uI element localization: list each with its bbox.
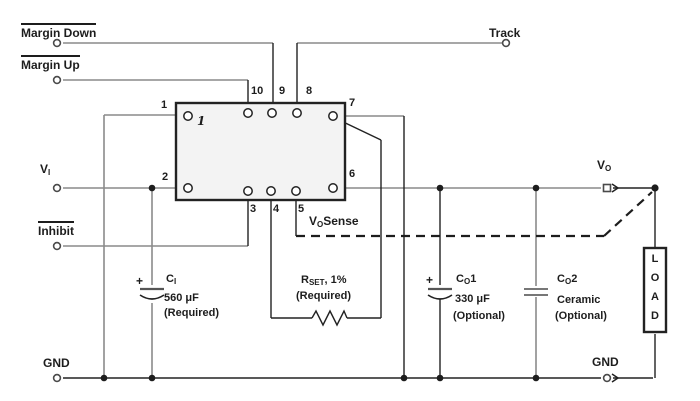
pin-label-4: 4: [273, 204, 279, 215]
co1-name: C: [456, 273, 464, 285]
ci-capacitor-symbol: [140, 289, 164, 299]
vo-label: VO: [597, 159, 611, 173]
vo-sense-base: V: [309, 214, 317, 228]
pin-label-2: 2: [162, 172, 168, 183]
ci-value-label: 560 μF: [164, 293, 199, 304]
wires-gray: [63, 43, 601, 378]
co2-capacitor-symbol: [524, 289, 548, 295]
track-label: Track: [489, 27, 520, 39]
vo-sub: O: [605, 164, 611, 173]
ci-sub: I: [174, 277, 176, 286]
inhibit-text: Inhibit: [38, 221, 74, 237]
pin-label-6: 6: [349, 169, 355, 180]
margin-down-label: Margin Down: [21, 23, 96, 39]
load-letter-l: L: [644, 254, 666, 265]
vo-sense-rest: Sense: [323, 214, 358, 228]
vo-base: V: [597, 158, 605, 172]
application-circuit-diagram: Margin Down Margin Up Track VI Inhibit V…: [0, 0, 700, 401]
pin-label-10: 10: [251, 86, 263, 97]
co1-value-label: 330 μF: [455, 294, 490, 305]
pin-label-9: 9: [279, 86, 285, 97]
co2-note-label: (Optional): [555, 311, 607, 322]
rset-rest: , 1%: [325, 274, 347, 286]
ci-plus-sign: +: [136, 275, 143, 287]
ci-note-label: (Required): [164, 308, 219, 319]
inhibit-label: Inhibit: [38, 221, 74, 237]
circuit-graphics: [0, 0, 700, 401]
co1-note-label: (Optional): [453, 311, 505, 322]
vi-base: V: [40, 162, 48, 176]
co1-index: 1: [470, 273, 476, 285]
co1-capacitor-symbol: [428, 289, 452, 299]
pin-label-8: 8: [306, 86, 312, 97]
pin-label-5: 5: [298, 204, 304, 215]
pin-label-7: 7: [349, 98, 355, 109]
load-letter-o: O: [644, 273, 666, 284]
rset-resistor-symbol: [312, 311, 347, 325]
co1-name-label: CO1: [456, 274, 476, 286]
gnd-left-label: GND: [43, 357, 70, 369]
co2-name-label: CO2: [557, 274, 577, 286]
ci-name-label: CI: [166, 274, 176, 286]
vi-label: VI: [40, 163, 50, 177]
gnd-right-label: GND: [592, 356, 619, 368]
vi-sub: I: [48, 168, 50, 177]
co1-plus-sign: +: [426, 274, 433, 286]
margin-down-text: Margin Down: [21, 23, 96, 39]
terminal-circles: [54, 40, 611, 382]
load-letter-a: A: [644, 292, 666, 303]
rset-name-label: RSET, 1%: [301, 275, 347, 287]
pin-label-1: 1: [161, 100, 167, 111]
co2-value-label: Ceramic: [557, 295, 600, 306]
load-letter-d: D: [644, 311, 666, 322]
co2-name: C: [557, 273, 565, 285]
ci-name: C: [166, 273, 174, 285]
rset-name: R: [301, 274, 309, 286]
margin-up-label: Margin Up: [21, 55, 80, 71]
rset-sub: SET: [309, 278, 325, 287]
pin-label-3: 3: [250, 204, 256, 215]
co2-index: 2: [571, 273, 577, 285]
rset-note-label: (Required): [296, 291, 351, 302]
terminal-arrows: [612, 184, 618, 382]
ic-pin1-inner-mark: 1: [197, 115, 205, 127]
vo-sense-label: VOSense: [309, 215, 359, 229]
margin-up-text: Margin Up: [21, 55, 80, 71]
